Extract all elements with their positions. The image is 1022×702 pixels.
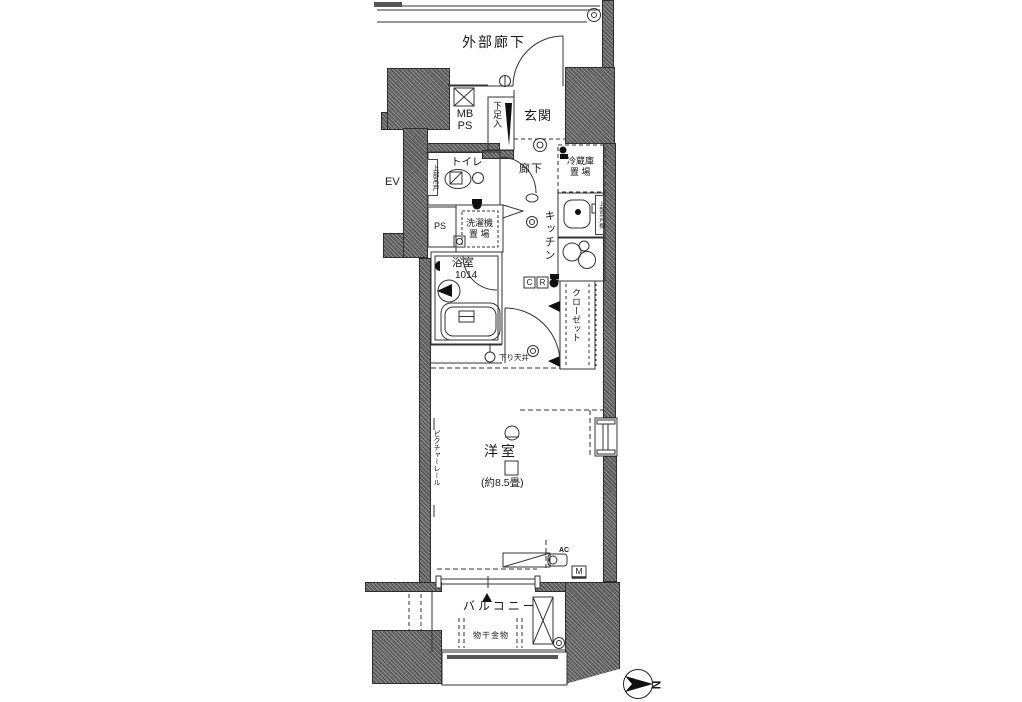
label-entrance: 玄関 bbox=[524, 109, 552, 124]
label-bath-size: 1014 bbox=[455, 270, 477, 282]
label-ac: AC bbox=[559, 547, 569, 555]
label-elevator: EV bbox=[385, 176, 400, 189]
label-ps-mid: PS bbox=[434, 221, 446, 231]
label-shoe-box: 下足入 bbox=[492, 101, 501, 147]
label-room: 洋室 bbox=[484, 443, 518, 459]
room-interior bbox=[431, 345, 519, 517]
label-r: R bbox=[537, 278, 548, 287]
label-laundry-line2: 置 場 bbox=[469, 229, 490, 239]
label-c: C bbox=[524, 278, 535, 287]
hallway-lights bbox=[526, 194, 538, 228]
mb-ps-duct bbox=[448, 85, 488, 106]
label-toilet: トイレ bbox=[451, 156, 483, 168]
label-upper-cabinet-kitchen: 上部吊戸棚 bbox=[595, 195, 604, 235]
label-hallway: 廊下 bbox=[519, 163, 543, 176]
label-drying-fixture: 物干金物 bbox=[473, 631, 509, 640]
label-mb: MB bbox=[454, 108, 476, 121]
window-right bbox=[595, 418, 617, 456]
label-dropped-ceiling: 下り天井 bbox=[499, 354, 529, 363]
corridor-railing-lines bbox=[374, 2, 601, 22]
label-room-size: (約8.5畳) bbox=[481, 477, 524, 489]
label-closet: クローゼット bbox=[571, 288, 580, 366]
label-balcony: バルコニー bbox=[463, 600, 538, 614]
floor-plan: 外部廊下 MB PS 玄関 下足入 EV トイレ 廊下 上部吊戸 冷蔵庫 置 場… bbox=[0, 0, 1022, 702]
label-fridge-line1: 冷蔵庫 bbox=[567, 156, 594, 166]
label-upper-cabinet-toilet: 上部吊戸 bbox=[427, 159, 438, 196]
label-ps-top: PS bbox=[454, 120, 476, 133]
plan-linework bbox=[0, 0, 1022, 702]
label-bath: 浴室 bbox=[452, 257, 474, 270]
label-fridge-line2: 置 場 bbox=[570, 167, 591, 177]
label-corridor: 外部廊下 bbox=[462, 34, 526, 50]
label-picture-rail: ピクチャーレール bbox=[433, 430, 440, 508]
label-north: N bbox=[648, 681, 662, 690]
label-meter: M bbox=[572, 567, 586, 577]
label-laundry-line1: 洗濯機 bbox=[466, 218, 493, 228]
